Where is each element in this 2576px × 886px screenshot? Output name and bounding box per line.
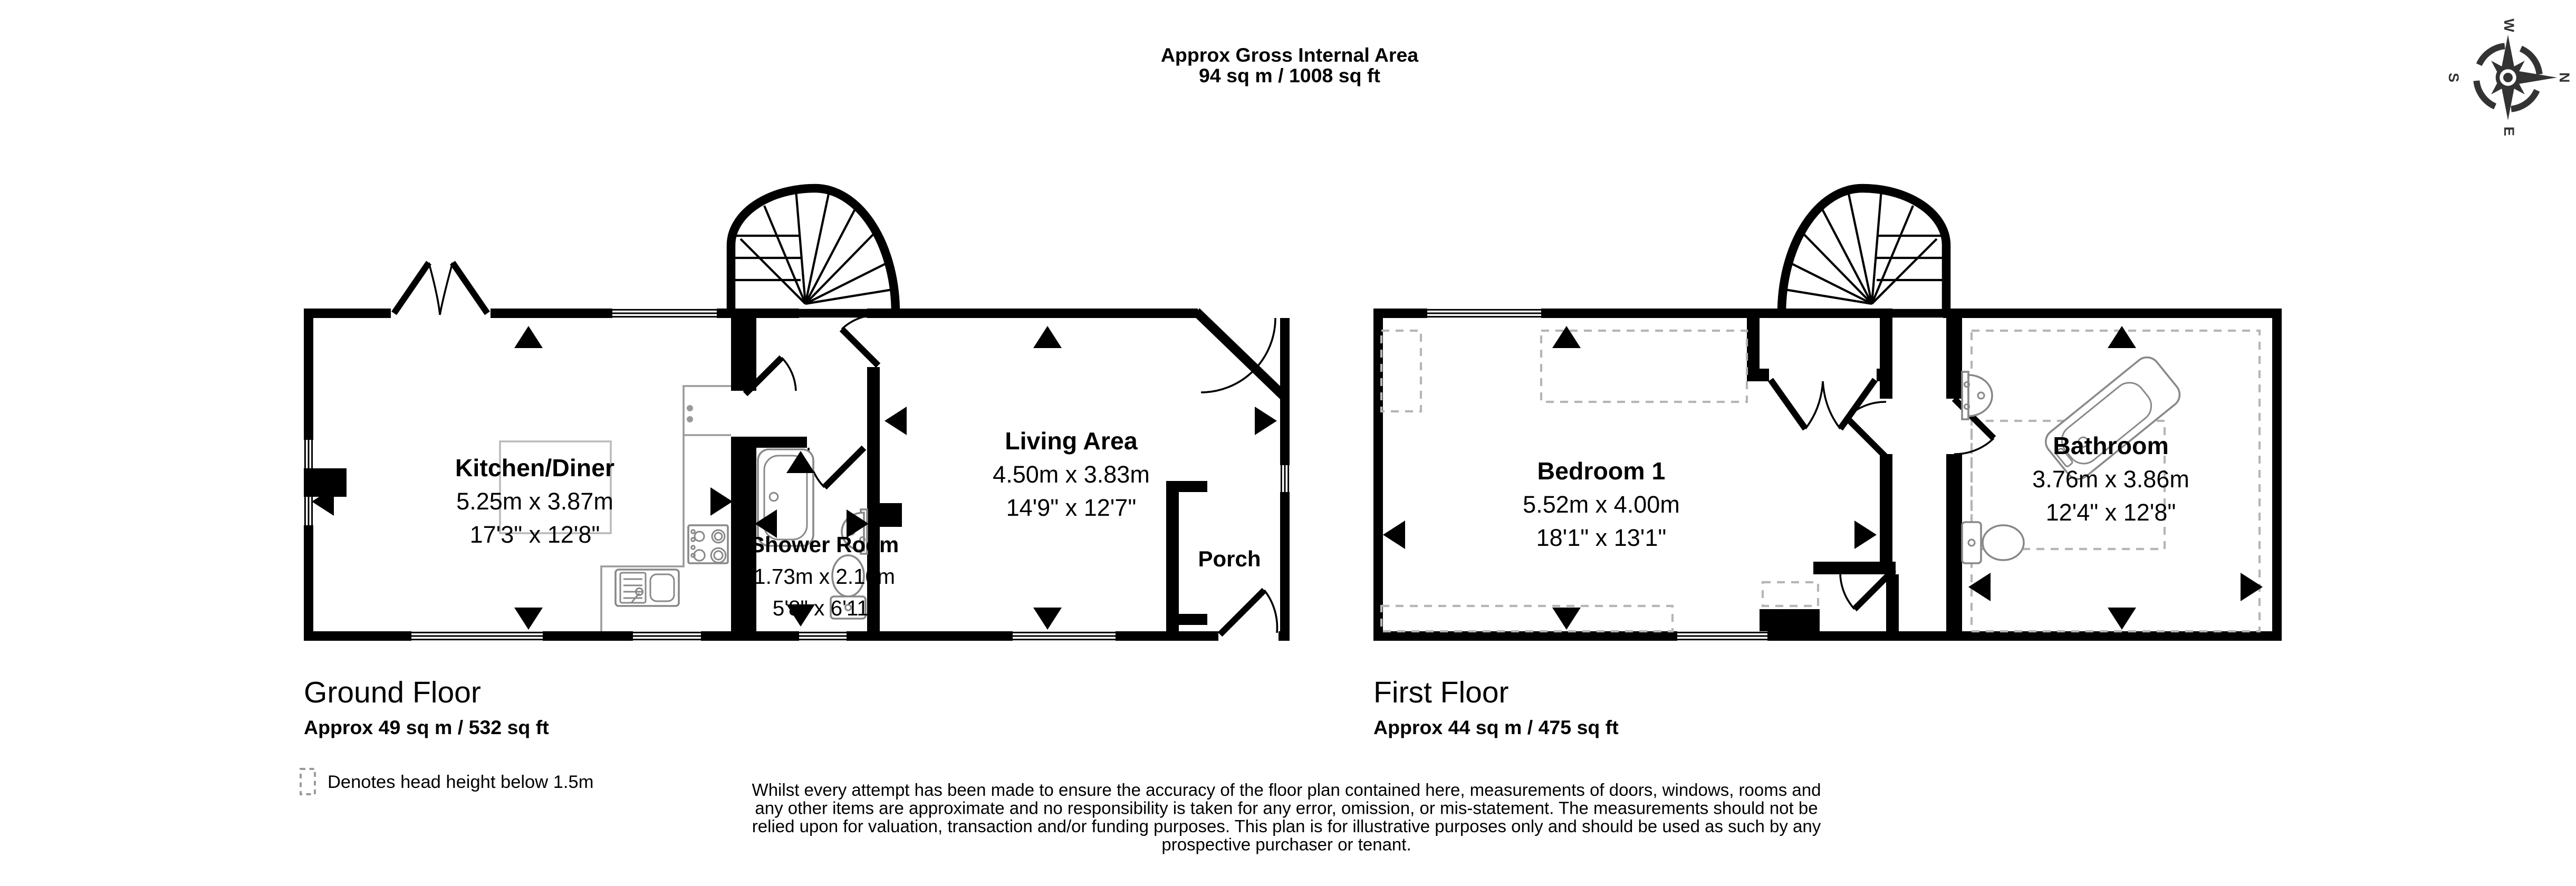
hob-icon [688, 525, 728, 563]
title-line2: 94 sq m / 1008 sq ft [1199, 64, 1380, 86]
ground-floor-plan: Kitchen/Diner 5.25m x 3.87m 17'3" x 12'8… [304, 188, 1290, 641]
compass-west-label: W [2501, 18, 2517, 32]
first-floor-area: Approx 44 sq m / 475 sq ft [1373, 716, 1619, 738]
compass-rose-icon: W N E S [2446, 18, 2572, 136]
room-imperial-bathroom: 12'4" x 12'8" [2046, 499, 2176, 526]
room-metric-bathroom: 3.76m x 3.86m [2032, 466, 2189, 493]
porch-door [1220, 590, 1277, 634]
room-imperial-bedroom-1: 18'1" x 13'1" [1536, 524, 1667, 551]
disclaimer-line4: prospective purchaser or tenant. [1161, 835, 1411, 854]
disclaimer-line2: any other items are approximate and no r… [755, 798, 1818, 818]
room-metric-living-area: 4.50m x 3.83m [993, 461, 1150, 488]
compass-east-label: E [2501, 127, 2517, 136]
bath-tub-icon [2041, 352, 2185, 484]
room-imperial-kitchen-diner: 17'3" x 12'8" [470, 521, 600, 548]
staircase-first [1782, 188, 1946, 313]
floorplan-canvas: Approx Gross Internal Area 94 sq m / 100… [0, 0, 2576, 886]
shower-room-door [809, 448, 864, 487]
ground-floor-title: Ground Floor [304, 676, 481, 709]
room-label-kitchen-diner: Kitchen/Diner [455, 454, 614, 481]
landing-door [1840, 570, 1894, 609]
head-height-legend-text: Denotes head height below 1.5m [328, 772, 593, 792]
floorplan-page: Approx Gross Internal Area 94 sq m / 100… [0, 0, 2576, 886]
title-line1: Approx Gross Internal Area [1161, 44, 1419, 66]
room-metric-bedroom-1: 5.52m x 4.00m [1523, 491, 1680, 518]
kitchen-sink-icon [616, 570, 679, 606]
disclaimer-block: Whilst every attempt has been made to en… [752, 780, 1821, 854]
first-floor-plan: Bedroom 1 5.52m x 4.00m 18'1" x 13'1" Ba… [1373, 188, 2282, 641]
room-label-shower-room: Shower Room [750, 532, 899, 557]
room-label-bathroom: Bathroom [2053, 432, 2169, 459]
staircase-ground [731, 188, 896, 313]
room-label-living-area: Living Area [1005, 427, 1138, 455]
floor-titles: Ground Floor Approx 49 sq m / 532 sq ft … [304, 676, 1619, 738]
room-metric-kitchen-diner: 5.25m x 3.87m [456, 488, 613, 515]
gross-internal-area-title: Approx Gross Internal Area 94 sq m / 100… [1161, 44, 1419, 86]
first-floor-title: First Floor [1373, 676, 1509, 709]
head-height-legend: Denotes head height below 1.5m [301, 769, 593, 794]
wardrobe-doors [1771, 380, 1875, 429]
living-area-door [842, 315, 878, 365]
bathroom-toilet-icon [1962, 522, 2024, 563]
compass-north-label: N [2556, 72, 2572, 83]
head-height-legend-swatch [301, 769, 315, 794]
room-label-bedroom-1: Bedroom 1 [1537, 457, 1666, 485]
room-imperial-living-area: 14'9" x 12'7" [1006, 494, 1137, 521]
room-label-porch: Porch [1198, 546, 1261, 571]
first-floor-interior-walls [1747, 318, 1962, 631]
room-metric-shower-room: 1.73m x 2.10m [754, 564, 895, 589]
disclaimer-line1: Whilst every attempt has been made to en… [752, 780, 1821, 800]
room-imperial-shower-room: 5'8" x 6'11" [773, 596, 877, 620]
compass-south-label: S [2446, 73, 2462, 82]
bathroom-basin-icon [1962, 372, 1992, 419]
disclaimer-line3: relied upon for valuation, transaction a… [752, 816, 1821, 836]
french-doors [394, 263, 487, 315]
ground-floor-area: Approx 49 sq m / 532 sq ft [304, 716, 549, 738]
